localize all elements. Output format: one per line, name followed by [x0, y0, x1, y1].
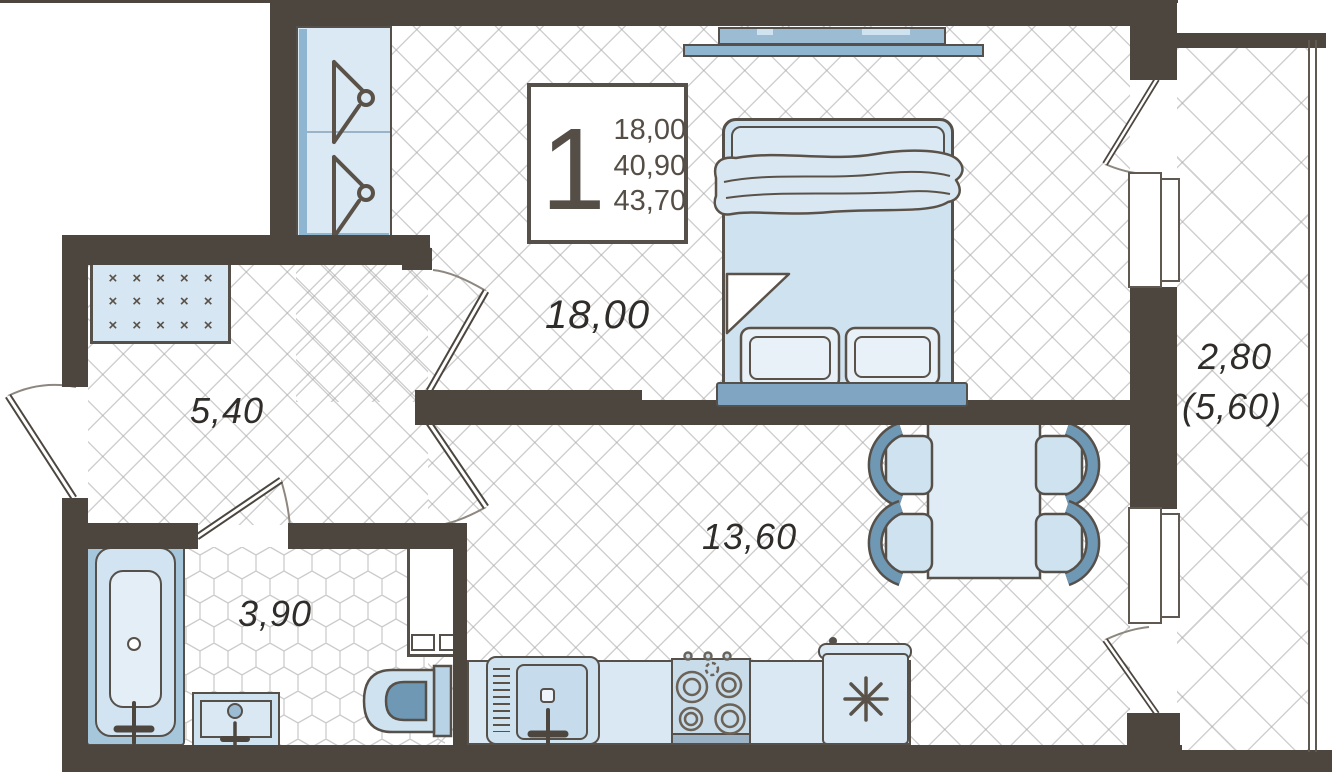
fridge-knob: [829, 637, 837, 645]
bed-headboard: [716, 382, 968, 407]
bathroom-door: [197, 480, 290, 537]
kitchen-door: [429, 423, 486, 526]
wall: [453, 523, 467, 767]
wall: [288, 523, 467, 549]
wall: [415, 390, 642, 402]
bathtub-faucet-icon: [117, 703, 151, 743]
apartment-info-box: 1 18,00 40,90 43,70: [527, 83, 688, 244]
areas-list: 18,00 40,90 43,70: [614, 113, 687, 219]
chair: [1036, 429, 1093, 501]
room-label-bedroom: 18,00: [545, 293, 650, 338]
wall: [1175, 33, 1326, 48]
room-label-kitchen: 13,60: [702, 516, 797, 558]
hanger-icon: [334, 62, 373, 142]
dining-table: [928, 418, 1040, 578]
wall: [62, 745, 1182, 772]
apartment-area-value: 40,90: [614, 149, 687, 184]
hanger-icon: [334, 157, 373, 237]
wall: [1180, 750, 1332, 772]
room-label-bathroom: 3,90: [238, 593, 312, 635]
wall: [62, 235, 430, 265]
wall: [1130, 0, 1177, 80]
wall: [1127, 713, 1180, 765]
kitchen-faucet-icon: [531, 710, 565, 746]
rooms-count: 1: [541, 123, 606, 216]
window: [1160, 513, 1180, 618]
toilet: [364, 666, 451, 736]
wall: [62, 523, 198, 549]
balcony-railing: [1308, 40, 1317, 752]
blanket-fold: [727, 274, 789, 333]
room-label-balcony: 2,80: [1198, 336, 1272, 378]
room-label-hallway: 5,40: [190, 390, 264, 432]
total-area-value: 43,70: [614, 184, 687, 219]
chair: [875, 429, 932, 501]
stove-burners: [677, 653, 745, 734]
window: [1160, 178, 1180, 282]
balcony-door: [1105, 79, 1157, 174]
room-label-balcony-secondary: (5,60): [1182, 386, 1282, 428]
window: [1128, 172, 1162, 288]
pillow: [846, 328, 939, 385]
chair: [1036, 507, 1093, 579]
basin-knob: [228, 704, 242, 718]
pillow: [741, 328, 839, 388]
floor-plan: ×××××××××××××××: [0, 0, 1332, 772]
snowflake-icon: [845, 678, 887, 720]
wall: [270, 0, 1175, 26]
wall: [1130, 287, 1177, 509]
bedroom-door: [429, 270, 486, 391]
sink-soap-dish: [541, 689, 554, 702]
entrance-door: [8, 385, 76, 498]
wall: [62, 265, 88, 387]
living-area-value: 18,00: [614, 113, 687, 148]
balcony-door: [1105, 627, 1157, 714]
wall: [270, 0, 296, 242]
window: [1128, 507, 1162, 624]
wall: [402, 248, 432, 270]
bathtub-drain: [128, 638, 140, 650]
bed-blanket: [715, 151, 963, 215]
chair: [875, 507, 932, 579]
